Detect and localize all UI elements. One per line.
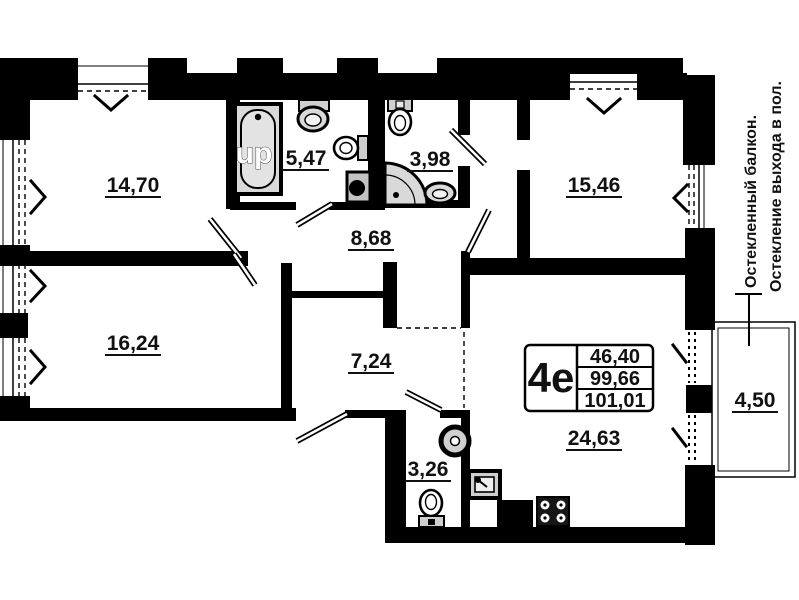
wall-top-ext <box>148 58 187 74</box>
room-label-kitchen-living: 24,63 <box>568 427 621 450</box>
balcony-note-line1: Остекленный балкон. <box>743 115 760 288</box>
window-open-chevron <box>588 99 620 113</box>
watermark-up: up <box>236 137 273 170</box>
wall-bathroom2-right <box>458 166 470 208</box>
window-left-3 <box>3 338 45 396</box>
wall-left <box>0 83 30 140</box>
window-open-chevron <box>31 351 45 383</box>
wall-top-ext <box>437 58 683 74</box>
wall-hall-corridor-divider <box>285 291 385 298</box>
room-label-bedroom3: 16,24 <box>107 332 160 355</box>
toilet-icon <box>334 136 368 160</box>
toilet3-icon <box>419 490 444 527</box>
wall-kitchen-left <box>461 251 470 328</box>
window-bedroom1 <box>78 66 148 110</box>
door-bathroom2 <box>451 130 485 164</box>
room-label-balcony: 4,50 <box>735 389 776 412</box>
door-entrance <box>297 414 347 441</box>
unit-card: 4е 46,40 99,66 101,01 <box>525 345 653 412</box>
room-label-bathroom: 5,47 <box>286 147 327 170</box>
wall-right <box>683 75 715 165</box>
boiler-icon <box>347 172 370 202</box>
room-label-bathroom2: 3,98 <box>410 148 451 171</box>
window-open-chevron <box>95 96 127 110</box>
balcony-note: Остекленный балкон. Остекление выхода в … <box>735 81 785 346</box>
wall-left-pier <box>0 313 28 338</box>
toilet2-icon <box>388 99 412 135</box>
window-open-chevron <box>674 185 687 211</box>
wall-top-ext <box>337 58 378 74</box>
window-left-2 <box>3 264 45 313</box>
wall-pier-kitchen <box>497 500 533 529</box>
kitchen-sink-icon <box>469 471 500 498</box>
area-value-total-balcony: 101,01 <box>584 390 645 412</box>
stove-icon <box>537 497 569 526</box>
wall-bedroom3-right <box>281 263 292 410</box>
wall-top <box>637 73 687 100</box>
wall-bedroom2-left <box>517 170 530 258</box>
window-open-chevron <box>31 181 45 213</box>
unit-type-label: 4е <box>528 354 575 401</box>
area-value-total: 99,66 <box>590 368 640 390</box>
window-left-1 <box>3 140 45 247</box>
wall-center-pier <box>383 262 397 328</box>
door-bathroom <box>297 204 332 225</box>
wall-top-ext <box>237 58 283 74</box>
room-label-corridor: 7,24 <box>351 350 392 373</box>
glazing-open-tick <box>673 345 686 362</box>
wall-bedroom1-bedroom3-divider <box>0 251 248 266</box>
wall-wc-left <box>385 410 406 530</box>
wall-bedroom2-left <box>517 97 530 140</box>
room-label-bedroom2: 15,46 <box>568 174 621 197</box>
room-label-wc: 3,26 <box>408 458 449 481</box>
outer-walls <box>0 58 715 545</box>
wall-top <box>148 73 570 100</box>
room-label-hall: 8,68 <box>351 227 392 250</box>
wall-right-pier <box>686 385 712 413</box>
wall-left-corner <box>0 58 43 83</box>
washing-machine-icon <box>441 427 469 455</box>
floor-plan-drawing: 14,70 5,47 3,98 15,46 8,68 16,24 7,24 3,… <box>0 0 799 600</box>
window-open-chevron <box>31 271 45 301</box>
glazing-open-tick <box>673 429 686 446</box>
area-value-living: 46,40 <box>590 346 640 368</box>
wall-bedroom2-bottom <box>468 258 685 275</box>
wall-bathroom-bottom <box>230 202 296 210</box>
wall-bottom-left-section <box>0 408 296 421</box>
door-vestibule <box>468 210 489 252</box>
wall-bottom <box>385 527 715 543</box>
sink2-icon <box>425 183 455 203</box>
sink-icon <box>298 100 329 131</box>
door-wc <box>406 392 441 410</box>
floor-plan: 14,70 5,47 3,98 15,46 8,68 16,24 7,24 3,… <box>0 0 799 600</box>
wall-right <box>685 228 715 330</box>
balcony-note-line2: Остекление выхода в пол. <box>768 81 785 292</box>
wall-bathroom2-right <box>458 93 470 135</box>
room-label-bedroom1: 14,70 <box>107 174 160 197</box>
wall-wc-top <box>440 410 461 418</box>
window-bedroom2-right <box>674 165 704 228</box>
